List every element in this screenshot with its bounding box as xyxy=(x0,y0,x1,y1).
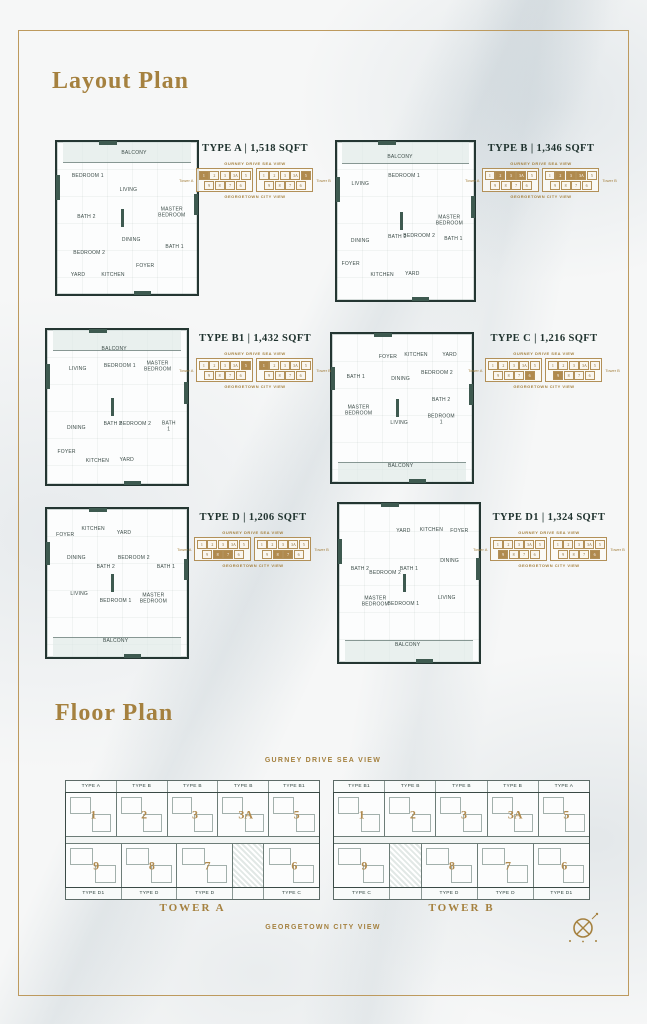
locator-tower-a-label: Tower A xyxy=(179,368,193,373)
locator-row-city-side: 9876 xyxy=(197,550,249,559)
locator-row-city-side: 9876 xyxy=(257,550,309,559)
wall-segment xyxy=(336,177,340,202)
wall-segment xyxy=(331,367,335,391)
locator-tower-b-block: 1233A59876 xyxy=(545,358,602,382)
locator-unit-cell: 3 xyxy=(506,171,516,180)
locator-unit-cell: 5 xyxy=(587,171,597,180)
locator-unit-cell: 9 xyxy=(202,550,212,559)
locator-unit-cell: 9 xyxy=(550,181,560,190)
locator-unit-cell: 1 xyxy=(199,171,209,180)
unit-number: 7 xyxy=(505,858,511,873)
locator-unit-cell: 1 xyxy=(197,540,207,549)
room-label-balcony: BALCONY xyxy=(395,643,420,649)
locator-row-city-side: 9876 xyxy=(548,371,600,380)
room-label-bedroom-1: BEDROOM 1 xyxy=(72,174,104,180)
locator-row-sea-side: 1233A5 xyxy=(199,171,251,180)
room-label-bath-2: BATH 2 xyxy=(351,567,369,573)
room-label-master-bedroom: MASTER BEDROOM xyxy=(341,405,377,417)
unit-number: 9 xyxy=(93,858,99,873)
locator-blocks: Tower A1233A598761233A59876Tower B xyxy=(188,537,318,561)
locator-unit-cell: 2 xyxy=(563,540,573,549)
unit-header-type-b1: TYPE B1 | 1,432 SQFT GURNEY DRIVE SEA VI… xyxy=(190,333,320,389)
locator-unit-cell: 3 xyxy=(280,171,290,180)
locator-unit-cell: 6 xyxy=(296,371,306,380)
type-label: TYPE D xyxy=(478,888,534,899)
locator-unit-cell: 3 xyxy=(569,361,579,370)
room-label-kitchen: KITCHEN xyxy=(82,527,105,533)
wall-segment xyxy=(89,508,107,512)
locator-unit-cell: 8 xyxy=(504,371,514,380)
locator-unit-cell: 8 xyxy=(215,371,225,380)
locator-unit-cell: 1 xyxy=(488,361,498,370)
unit-number: 3 xyxy=(461,807,467,822)
unit-locator-diagram: GURNEY DRIVE SEA VIEWTower A1233A5987612… xyxy=(190,351,320,389)
unit-header-type-b: TYPE B | 1,346 SQFT GURNEY DRIVE SEA VIE… xyxy=(477,143,605,199)
tower-unit: 6 xyxy=(264,844,319,887)
room-label-foyer: FOYER xyxy=(136,264,154,270)
room-label-yard: YARD xyxy=(442,353,456,359)
tower-unit: 8 xyxy=(422,844,478,887)
room-label-yard: YARD xyxy=(117,531,131,537)
floorplan-type-d: FOYERKITCHENYARDDININGBATH 2BEDROOM 2BAT… xyxy=(45,507,189,659)
tower-b-floorplan: TYPE B1TYPE BTYPE BTYPE BTYPE A1233A5987… xyxy=(333,780,590,900)
locator-unit-cell: 9 xyxy=(553,371,563,380)
room-label-living: LIVING xyxy=(69,367,87,373)
tower-top-type-labels: TYPE B1TYPE BTYPE BTYPE BTYPE A xyxy=(333,780,590,792)
wall-segment xyxy=(381,503,399,507)
tower-bottom-type-labels: TYPE D1TYPE DTYPE DTYPE C xyxy=(65,888,320,900)
locator-row-city-side: 9876 xyxy=(259,181,311,190)
tower-b-name: TOWER B xyxy=(333,902,590,914)
room-label-bath-2: BATH 2 xyxy=(77,215,95,221)
locator-unit-cell: 6 xyxy=(530,550,540,559)
locator-unit-cell: 7 xyxy=(574,371,584,380)
locator-unit-cell: 5 xyxy=(530,361,540,370)
locator-tower-a-block: 1233A59876 xyxy=(485,358,542,382)
locator-unit-cell: 3A xyxy=(230,171,240,180)
room-label-bath-2: BATH 2 xyxy=(97,565,115,571)
locator-unit-cell: 8 xyxy=(213,550,223,559)
locator-unit-cell: 9 xyxy=(264,181,274,190)
locator-blocks: Tower A1233A598761233A59876Tower B xyxy=(190,358,320,382)
locator-row-sea-side: 1233A5 xyxy=(493,540,545,549)
room-label-kitchen: KITCHEN xyxy=(420,528,443,534)
tower-unit: 3 xyxy=(168,793,219,836)
wall-segment xyxy=(374,333,392,337)
floorplan-type-d1: YARDKITCHENFOYERBATH 2BEDROOM 2BATH 1DIN… xyxy=(337,502,481,664)
room-label-bath-1: BATH 1 xyxy=(444,237,462,243)
unit-title-type-b: TYPE B | 1,346 SQFT xyxy=(477,143,605,154)
type-label: TYPE B xyxy=(488,781,539,792)
locator-unit-cell: 2 xyxy=(503,540,513,549)
locator-unit-cell: 7 xyxy=(514,371,524,380)
locator-unit-cell: 5 xyxy=(590,361,600,370)
wall-segment xyxy=(46,364,50,389)
locator-unit-cell: 8 xyxy=(509,550,519,559)
locator-blocks: Tower A1233A598761233A59876Tower B xyxy=(481,358,607,382)
locator-unit-cell: 7 xyxy=(571,181,581,190)
locator-unit-cell: 2 xyxy=(498,361,508,370)
locator-unit-cell: 2 xyxy=(209,361,219,370)
locator-tower-b-label: Tower B xyxy=(316,178,330,183)
unit-title-type-a: TYPE A | 1,518 SQFT xyxy=(193,143,317,154)
room-label-bedroom-2: BEDROOM 2 xyxy=(421,371,453,377)
tower-bottom-type-labels: TYPE CTYPE DTYPE DTYPE D1 xyxy=(333,888,590,900)
unit-title-type-c: TYPE C | 1,216 SQFT xyxy=(481,333,607,344)
locator-unit-cell: 6 xyxy=(236,181,246,190)
locator-unit-cell: 2 xyxy=(269,361,279,370)
locator-row-sea-side: 1233A5 xyxy=(548,361,600,370)
tower-unit: 5 xyxy=(269,793,319,836)
room-label-bedroom-2: BEDROOM 2 xyxy=(369,571,401,577)
unit-number: 2 xyxy=(410,807,416,822)
room-label-balcony: BALCONY xyxy=(387,155,412,161)
tower-unit: 7 xyxy=(177,844,233,887)
tower-a-floorplan: TYPE ATYPE BTYPE BTYPE BTYPE B11233A5987… xyxy=(65,780,320,900)
room-label-bedroom-1: BEDROOM 1 xyxy=(387,602,419,608)
locator-unit-cell: 5 xyxy=(241,361,251,370)
room-label-bath-1: BATH 1 xyxy=(160,421,178,433)
floorplan-type-a: BALCONYBEDROOM 1LIVINGMASTER BEDROOMBATH… xyxy=(55,140,199,296)
room-label-dining: DINING xyxy=(67,426,86,432)
type-label: TYPE C xyxy=(334,888,390,899)
unit-number: 3A xyxy=(508,807,523,822)
wall-segment xyxy=(338,539,342,564)
locator-unit-cell: 5 xyxy=(535,540,545,549)
unit-title-type-d: TYPE D | 1,206 SQFT xyxy=(188,512,318,523)
room-label-master-bedroom: MASTER BEDROOM xyxy=(436,215,463,227)
locator-blocks: Tower A1233A598761233A59876Tower B xyxy=(193,168,317,192)
wall-segment xyxy=(111,398,114,416)
tower-unit: 5 xyxy=(539,793,589,836)
lift-core xyxy=(233,844,264,887)
locator-sea-view-label: GURNEY DRIVE SEA VIEW xyxy=(481,351,607,356)
floorplan-type-b1: BALCONYLIVINGBEDROOM 1MASTER BEDROOMDINI… xyxy=(45,328,189,486)
locator-unit-cell: 6 xyxy=(525,371,535,380)
locator-tower-b-block: 1233A59876 xyxy=(550,537,607,561)
locator-unit-cell: 9 xyxy=(204,181,214,190)
room-label-balcony: BALCONY xyxy=(121,151,146,157)
locator-unit-cell: 6 xyxy=(234,550,244,559)
room-label-bath-1: BATH 1 xyxy=(165,246,183,252)
locator-city-view-label: GEORGETOWN CITY VIEW xyxy=(188,563,318,568)
room-label-bedroom-1: BEDROOM 1 xyxy=(426,414,457,426)
locator-tower-a-label: Tower A xyxy=(177,547,191,552)
type-label xyxy=(233,888,264,899)
locator-unit-cell: 8 xyxy=(564,371,574,380)
room-label-bath-1: BATH 1 xyxy=(400,567,418,573)
locator-unit-cell: 3A xyxy=(519,361,529,370)
wall-segment xyxy=(89,329,107,333)
room-label-living: LIVING xyxy=(70,592,88,598)
tower-sea-side-units: 1233A5 xyxy=(334,793,589,836)
tower-city-side-units: 9876 xyxy=(334,844,589,887)
room-label-foyer: FOYER xyxy=(450,530,468,536)
room-label-bedroom-2: BEDROOM 2 xyxy=(73,252,105,258)
locator-unit-cell: 9 xyxy=(204,371,214,380)
type-label: TYPE A xyxy=(66,781,117,792)
locator-unit-cell: 2 xyxy=(207,540,217,549)
locator-unit-cell: 6 xyxy=(522,181,532,190)
locator-unit-cell: 5 xyxy=(299,540,309,549)
unit-locator-diagram: GURNEY DRIVE SEA VIEWTower A1233A5987612… xyxy=(484,530,614,568)
locator-unit-cell: 7 xyxy=(223,550,233,559)
type-label: TYPE B xyxy=(436,781,487,792)
locator-unit-cell: 1 xyxy=(199,361,209,370)
unit-locator-diagram: GURNEY DRIVE SEA VIEWTower A1233A5987612… xyxy=(481,351,607,389)
room-label-yard: YARD xyxy=(120,458,134,464)
wall-segment xyxy=(469,384,473,405)
type-label: TYPE B1 xyxy=(334,781,385,792)
locator-blocks: Tower A1233A598761233A59876Tower B xyxy=(484,537,614,561)
tower-unit: 2 xyxy=(385,793,436,836)
room-label-balcony: BALCONY xyxy=(102,347,127,353)
wall-segment xyxy=(46,542,50,566)
tower-unit: 2 xyxy=(117,793,168,836)
unit-number: 1 xyxy=(90,807,96,822)
locator-unit-cell: 7 xyxy=(225,181,235,190)
compass-icon xyxy=(563,908,603,948)
tower-unit: 8 xyxy=(122,844,178,887)
locator-row-city-side: 9876 xyxy=(488,371,540,380)
room-label-yard: YARD xyxy=(71,273,85,279)
locator-unit-cell: 3A xyxy=(524,540,534,549)
locator-unit-cell: 8 xyxy=(275,371,285,380)
lift-core xyxy=(390,844,421,887)
room-label-dining: DINING xyxy=(122,238,141,244)
locator-city-view-label: GEORGETOWN CITY VIEW xyxy=(190,384,320,389)
wall-segment xyxy=(124,481,141,485)
unit-number: 3A xyxy=(238,807,253,822)
locator-unit-cell: 5 xyxy=(301,361,311,370)
locator-tower-a-block: 1233A59876 xyxy=(490,537,547,561)
locator-tower-a-label: Tower A xyxy=(465,178,479,183)
wall-segment xyxy=(396,399,399,417)
locator-tower-b-label: Tower B xyxy=(316,368,330,373)
unit-number: 8 xyxy=(149,858,155,873)
city-view-label: GEORGETOWN CITY VIEW xyxy=(173,924,473,931)
unit-number: 5 xyxy=(563,807,569,822)
type-label: TYPE D xyxy=(177,888,233,899)
type-label: TYPE B xyxy=(218,781,269,792)
locator-unit-cell: 3 xyxy=(278,540,288,549)
locator-row-city-side: 9876 xyxy=(199,371,251,380)
tower-city-side-units: 9876 xyxy=(66,844,319,887)
room-label-living: LIVING xyxy=(438,596,456,602)
locator-city-view-label: GEORGETOWN CITY VIEW xyxy=(484,563,614,568)
locator-unit-cell: 1 xyxy=(257,540,267,549)
tower-building: 1233A59876 xyxy=(65,792,320,888)
room-label-dining: DINING xyxy=(351,239,370,245)
tower-unit: 1 xyxy=(66,793,117,836)
room-label-living: LIVING xyxy=(351,182,369,188)
locator-unit-cell: 6 xyxy=(294,550,304,559)
locator-sea-view-label: GURNEY DRIVE SEA VIEW xyxy=(484,530,614,535)
room-label-dining: DINING xyxy=(67,556,86,562)
floorplan-type-c: FOYERKITCHENYARDBATH 1DININGBEDROOM 2MAS… xyxy=(330,332,474,484)
room-label-bath-1: BATH 1 xyxy=(157,565,175,571)
locator-unit-cell: 3A xyxy=(228,540,238,549)
wall-segment xyxy=(184,382,188,404)
locator-unit-cell: 6 xyxy=(582,181,592,190)
locator-unit-cell: 9 xyxy=(490,181,500,190)
locator-tower-b-label: Tower B xyxy=(610,547,624,552)
type-label: TYPE C xyxy=(264,888,319,899)
locator-unit-cell: 3 xyxy=(509,361,519,370)
locator-unit-cell: 1 xyxy=(259,171,269,180)
type-label: TYPE B1 xyxy=(269,781,319,792)
wall-segment xyxy=(134,291,151,295)
unit-number: 3 xyxy=(192,807,198,822)
unit-locator-diagram: GURNEY DRIVE SEA VIEWTower A1233A5987612… xyxy=(477,161,605,199)
tower-unit: 9 xyxy=(334,844,390,887)
locator-sea-view-label: GURNEY DRIVE SEA VIEW xyxy=(193,161,317,166)
locator-sea-view-label: GURNEY DRIVE SEA VIEW xyxy=(477,161,605,166)
sea-view-label: GURNEY DRIVE SEA VIEW xyxy=(173,757,473,764)
locator-unit-cell: 7 xyxy=(285,371,295,380)
room-label-kitchen: KITCHEN xyxy=(371,273,394,279)
unit-title-type-b1: TYPE B1 | 1,432 SQFT xyxy=(190,333,320,344)
locator-unit-cell: 5 xyxy=(241,171,251,180)
locator-row-sea-side: 1233A5 xyxy=(488,361,540,370)
locator-tower-b-block: 1233A59876 xyxy=(254,537,311,561)
locator-unit-cell: 3A xyxy=(584,540,594,549)
locator-unit-cell: 8 xyxy=(569,550,579,559)
locator-unit-cell: 9 xyxy=(262,550,272,559)
room-label-master-bedroom: MASTER BEDROOM xyxy=(158,208,185,220)
locator-unit-cell: 7 xyxy=(519,550,529,559)
locator-unit-cell: 6 xyxy=(296,181,306,190)
room-label-bedroom-1: BEDROOM 1 xyxy=(100,599,132,605)
locator-row-sea-side: 1233A5 xyxy=(197,540,249,549)
wall-segment xyxy=(111,574,114,592)
locator-tower-a-block: 1233A59876 xyxy=(196,358,253,382)
locator-unit-cell: 3A xyxy=(290,361,300,370)
unit-number: 7 xyxy=(205,858,211,873)
type-label: TYPE D1 xyxy=(66,888,122,899)
locator-row-city-side: 9876 xyxy=(545,181,597,190)
locator-sea-view-label: GURNEY DRIVE SEA VIEW xyxy=(190,351,320,356)
locator-unit-cell: 7 xyxy=(579,550,589,559)
locator-unit-cell: 9 xyxy=(498,550,508,559)
locator-unit-cell: 2 xyxy=(495,171,505,180)
unit-header-type-c: TYPE C | 1,216 SQFT GURNEY DRIVE SEA VIE… xyxy=(481,333,607,389)
room-label-bedroom-1: BEDROOM 1 xyxy=(104,364,136,370)
tower-unit: 1 xyxy=(334,793,385,836)
locator-tower-a-block: 1233A59876 xyxy=(194,537,251,561)
tower-unit: 7 xyxy=(478,844,534,887)
unit-number: 6 xyxy=(561,858,567,873)
unit-locator-diagram: GURNEY DRIVE SEA VIEWTower A1233A5987612… xyxy=(193,161,317,199)
locator-unit-cell: 6 xyxy=(590,550,600,559)
wall-segment xyxy=(409,479,426,483)
locator-blocks: Tower A1233A598761233A59876Tower B xyxy=(477,168,605,192)
locator-tower-b-block: 1233A59876 xyxy=(256,358,313,382)
locator-unit-cell: 9 xyxy=(558,550,568,559)
tower-unit: 3A xyxy=(488,793,539,836)
type-label: TYPE D xyxy=(122,888,178,899)
locator-unit-cell: 6 xyxy=(236,371,246,380)
room-label-dining: DINING xyxy=(391,377,410,383)
locator-unit-cell: 3A xyxy=(516,171,526,180)
locator-unit-cell: 3 xyxy=(574,540,584,549)
locator-unit-cell: 9 xyxy=(264,371,274,380)
locator-unit-cell: 8 xyxy=(501,181,511,190)
locator-tower-a-block: 1233A59876 xyxy=(482,168,539,192)
room-label-balcony: BALCONY xyxy=(103,639,128,645)
type-label: TYPE B xyxy=(117,781,168,792)
locator-unit-cell: 3A xyxy=(290,171,300,180)
locator-unit-cell: 3A xyxy=(288,540,298,549)
unit-header-type-d: TYPE D | 1,206 SQFT GURNEY DRIVE SEA VIE… xyxy=(188,512,318,568)
wall-segment xyxy=(99,141,117,145)
locator-unit-cell: 2 xyxy=(558,361,568,370)
locator-unit-cell: 8 xyxy=(215,181,225,190)
tower-unit: 6 xyxy=(534,844,589,887)
locator-unit-cell: 8 xyxy=(561,181,571,190)
wall-segment xyxy=(400,212,403,231)
locator-unit-cell: 5 xyxy=(595,540,605,549)
locator-unit-cell: 5 xyxy=(527,171,537,180)
locator-tower-b-label: Tower B xyxy=(602,178,616,183)
locator-row-sea-side: 1233A5 xyxy=(259,361,311,370)
room-label-bath-1: BATH 1 xyxy=(347,376,365,382)
locator-row-sea-side: 1233A5 xyxy=(485,171,537,180)
locator-unit-cell: 3A xyxy=(579,361,589,370)
locator-tower-b-block: 1233A59876 xyxy=(542,168,599,192)
type-label xyxy=(390,888,421,899)
room-label-foyer: FOYER xyxy=(56,533,74,539)
unit-number: 8 xyxy=(449,858,455,873)
locator-unit-cell: 1 xyxy=(485,171,495,180)
unit-header-type-d1: TYPE D1 | 1,324 SQFT GURNEY DRIVE SEA VI… xyxy=(484,512,614,568)
tower-top-type-labels: TYPE ATYPE BTYPE BTYPE BTYPE B1 xyxy=(65,780,320,792)
locator-unit-cell: 3 xyxy=(280,361,290,370)
locator-tower-a-label: Tower A xyxy=(468,368,482,373)
locator-unit-cell: 7 xyxy=(225,371,235,380)
room-label-kitchen: KITCHEN xyxy=(404,353,427,359)
type-label: TYPE D xyxy=(422,888,478,899)
locator-row-sea-side: 1233A5 xyxy=(257,540,309,549)
wall-segment xyxy=(416,659,433,663)
locator-tower-b-label: Tower B xyxy=(314,547,328,552)
locator-row-city-side: 9876 xyxy=(553,550,605,559)
locator-unit-cell: 3 xyxy=(218,540,228,549)
unit-title-type-d1: TYPE D1 | 1,324 SQFT xyxy=(484,512,614,523)
tower-corridor xyxy=(334,836,589,844)
room-label-foyer: FOYER xyxy=(342,262,360,268)
locator-unit-cell: 7 xyxy=(285,181,295,190)
locator-unit-cell: 7 xyxy=(511,181,521,190)
locator-tower-b-label: Tower B xyxy=(605,368,619,373)
locator-tower-a-label: Tower A xyxy=(473,547,487,552)
type-label: TYPE B xyxy=(385,781,436,792)
wall-segment xyxy=(378,141,396,145)
locator-unit-cell: 2 xyxy=(555,171,565,180)
wall-segment xyxy=(403,574,406,593)
locator-row-city-side: 9876 xyxy=(485,181,537,190)
room-label-kitchen: KITCHEN xyxy=(101,273,124,279)
room-label-yard: YARD xyxy=(396,530,410,536)
locator-unit-cell: 8 xyxy=(273,550,283,559)
tower-unit: 9 xyxy=(66,844,122,887)
unit-number: 5 xyxy=(294,807,300,822)
wall-segment xyxy=(56,175,60,199)
tower-corridor xyxy=(66,836,319,844)
locator-tower-a-label: Tower A xyxy=(179,178,193,183)
locator-unit-cell: 3 xyxy=(566,171,576,180)
locator-unit-cell: 1 xyxy=(545,171,555,180)
